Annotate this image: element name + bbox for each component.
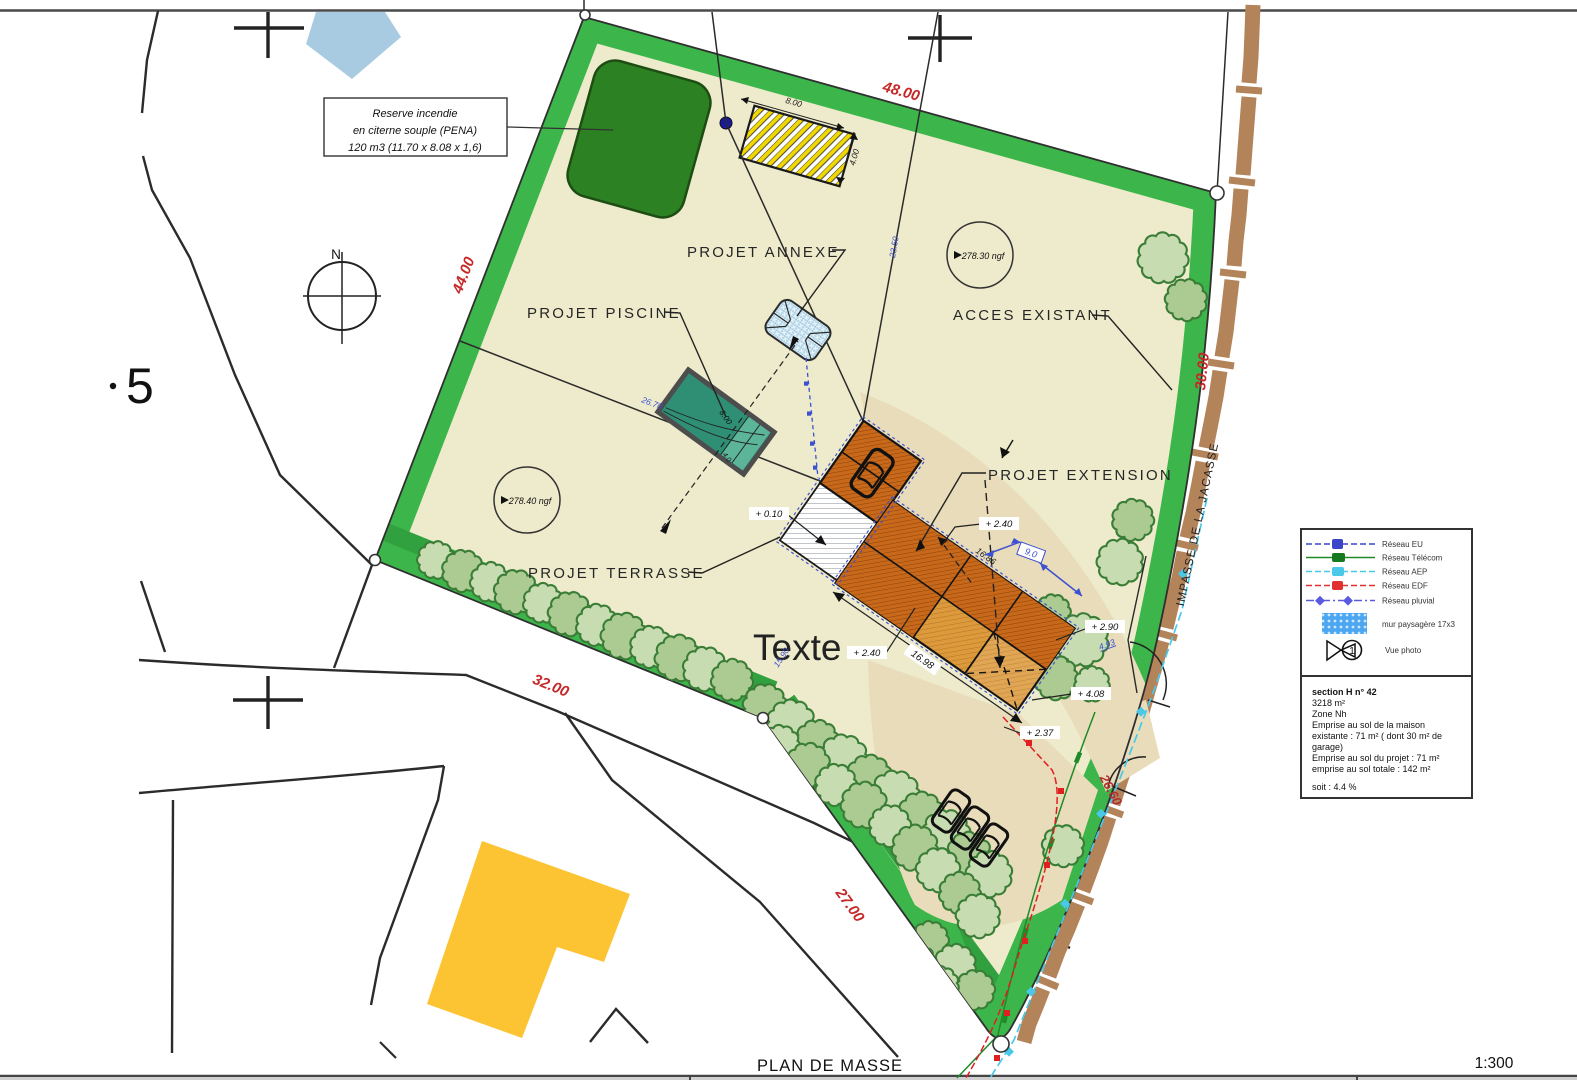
svg-text:PROJET TERRASSE: PROJET TERRASSE [528, 565, 705, 582]
svg-text:Texte: Texte [753, 627, 841, 668]
svg-text:ACCES EXISTANT: ACCES EXISTANT [953, 307, 1112, 324]
svg-text:emprise au sol totale : 142 m²: emprise au sol totale : 142 m² [1312, 764, 1431, 774]
svg-text:Emprise au sol de la maison: Emprise au sol de la maison [1312, 720, 1425, 730]
svg-text:soit : 4.4 %: soit : 4.4 % [1312, 782, 1357, 792]
svg-text:existante : 71 m² ( dont 30 m²: existante : 71 m² ( dont 30 m² de [1312, 731, 1442, 741]
svg-text:en citerne souple (PENA): en citerne souple (PENA) [353, 125, 477, 137]
svg-text:1: 1 [1349, 646, 1355, 657]
svg-text:+ 4.08: + 4.08 [1078, 689, 1105, 700]
svg-text:Emprise au sol du projet : 71: Emprise au sol du projet : 71 m² [1312, 753, 1440, 763]
svg-text:PROJET ANNEXE: PROJET ANNEXE [687, 244, 840, 261]
svg-text:+ 2.40: + 2.40 [854, 648, 881, 659]
svg-text:278.30 ngf: 278.30 ngf [961, 251, 1006, 261]
svg-text:278.40 ngf: 278.40 ngf [508, 496, 553, 506]
svg-text:Vue photo: Vue photo [1385, 646, 1422, 655]
svg-text:PROJET EXTENSION: PROJET EXTENSION [988, 467, 1173, 484]
svg-text:3218 m²: 3218 m² [1312, 698, 1345, 708]
svg-text:Réseau EDF: Réseau EDF [1382, 582, 1428, 591]
svg-text:garage): garage) [1312, 742, 1343, 752]
svg-text:Réseau pluvial: Réseau pluvial [1382, 597, 1435, 606]
svg-text:PROJET PISCINE: PROJET PISCINE [527, 305, 681, 322]
svg-text:PLAN DE MASSE: PLAN DE MASSE [757, 1057, 903, 1075]
svg-text:Réseau AEP: Réseau AEP [1382, 568, 1427, 577]
svg-text:mur paysagère 17x3: mur paysagère 17x3 [1382, 620, 1455, 629]
svg-text:Réseau Télécom: Réseau Télécom [1382, 554, 1443, 563]
svg-text:+ 2.37: + 2.37 [1027, 728, 1054, 739]
svg-text:Reserve incendie: Reserve incendie [373, 108, 458, 120]
svg-text:1:300: 1:300 [1475, 1055, 1514, 1072]
svg-text:N: N [331, 247, 341, 262]
svg-text:+ 2.40: + 2.40 [986, 519, 1013, 530]
svg-text:+ 2.90: + 2.90 [1092, 622, 1119, 633]
svg-text:Zone Nh: Zone Nh [1312, 709, 1347, 719]
svg-text:120 m3 (11.70 x 8.08 x 1,6): 120 m3 (11.70 x 8.08 x 1,6) [348, 142, 482, 154]
svg-text:+ 0.10: + 0.10 [756, 509, 783, 520]
svg-text:5: 5 [126, 358, 154, 414]
svg-text:section H n° 42: section H n° 42 [1312, 687, 1377, 697]
svg-text:Réseau EU: Réseau EU [1382, 540, 1423, 549]
